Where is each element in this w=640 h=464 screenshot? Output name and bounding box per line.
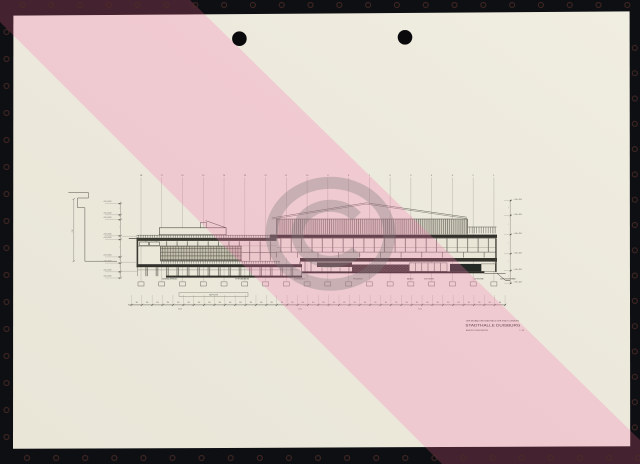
svg-text:+ 9.80 = 42.30: + 9.80 = 42.30: [514, 282, 523, 284]
svg-text:415: 415: [508, 260, 510, 262]
svg-text:350: 350: [271, 302, 273, 304]
svg-text:+ 4.25 = 36.10: + 4.25 = 36.10: [103, 201, 112, 203]
svg-text:415: 415: [508, 206, 510, 208]
svg-text:350: 350: [136, 302, 138, 304]
svg-text:+ 9.80 = 42.30: + 9.80 = 42.30: [514, 214, 523, 216]
svg-text:+ 4.25 = 36.10: + 4.25 = 36.10: [103, 217, 112, 219]
svg-text:+ 9.80 = 42.30: + 9.80 = 42.30: [514, 233, 523, 235]
svg-text:350: 350: [250, 302, 252, 304]
svg-text:415: 415: [118, 246, 120, 248]
svg-text:350: 350: [260, 302, 262, 304]
svg-text:350: 350: [208, 302, 210, 304]
svg-text:415: 415: [508, 242, 510, 244]
svg-text:+ 4.25 = 36.10: + 4.25 = 36.10: [103, 261, 112, 263]
svg-text:350: 350: [239, 302, 241, 304]
svg-text:+ 4.25 = 36.10: + 4.25 = 36.10: [103, 233, 112, 235]
svg-text:415: 415: [118, 265, 120, 267]
svg-text:+ 9.80 = 42.30: + 9.80 = 42.30: [514, 199, 523, 201]
svg-text:350: 350: [156, 302, 158, 304]
svg-text:415: 415: [118, 235, 120, 237]
svg-text:350: 350: [146, 302, 148, 304]
svg-text:350: 350: [229, 302, 231, 304]
svg-text:+ 4.25 = 36.10: + 4.25 = 36.10: [103, 254, 112, 256]
svg-text:415: 415: [508, 223, 510, 225]
svg-text:415: 415: [508, 275, 510, 277]
svg-text:415: 415: [118, 215, 120, 217]
svg-text:415: 415: [118, 226, 120, 228]
svg-text:35.00: 35.00: [178, 309, 182, 311]
svg-text:415: 415: [118, 273, 120, 275]
svg-text:+ 4.25 = 36.10: + 4.25 = 36.10: [103, 212, 112, 214]
svg-text:+ 9.80 = 42.30: + 9.80 = 42.30: [514, 252, 523, 254]
svg-text:350: 350: [177, 302, 179, 304]
svg-text:350: 350: [187, 302, 189, 304]
svg-text:+ 4.25 = 36.10: + 4.25 = 36.10: [103, 276, 112, 278]
svg-text:+ 4.25 = 36.10: + 4.25 = 36.10: [103, 269, 112, 271]
svg-text:350: 350: [167, 302, 169, 304]
svg-text:415: 415: [118, 207, 120, 209]
svg-text:+ 9.80 = 42.30: + 9.80 = 42.30: [514, 269, 523, 271]
svg-text:350: 350: [219, 302, 221, 304]
svg-text:415: 415: [118, 258, 120, 260]
svg-text:350: 350: [198, 302, 200, 304]
svg-text:+ 4.25 = 36.10: + 4.25 = 36.10: [103, 237, 112, 239]
svg-text:7.50: 7.50: [72, 229, 74, 232]
